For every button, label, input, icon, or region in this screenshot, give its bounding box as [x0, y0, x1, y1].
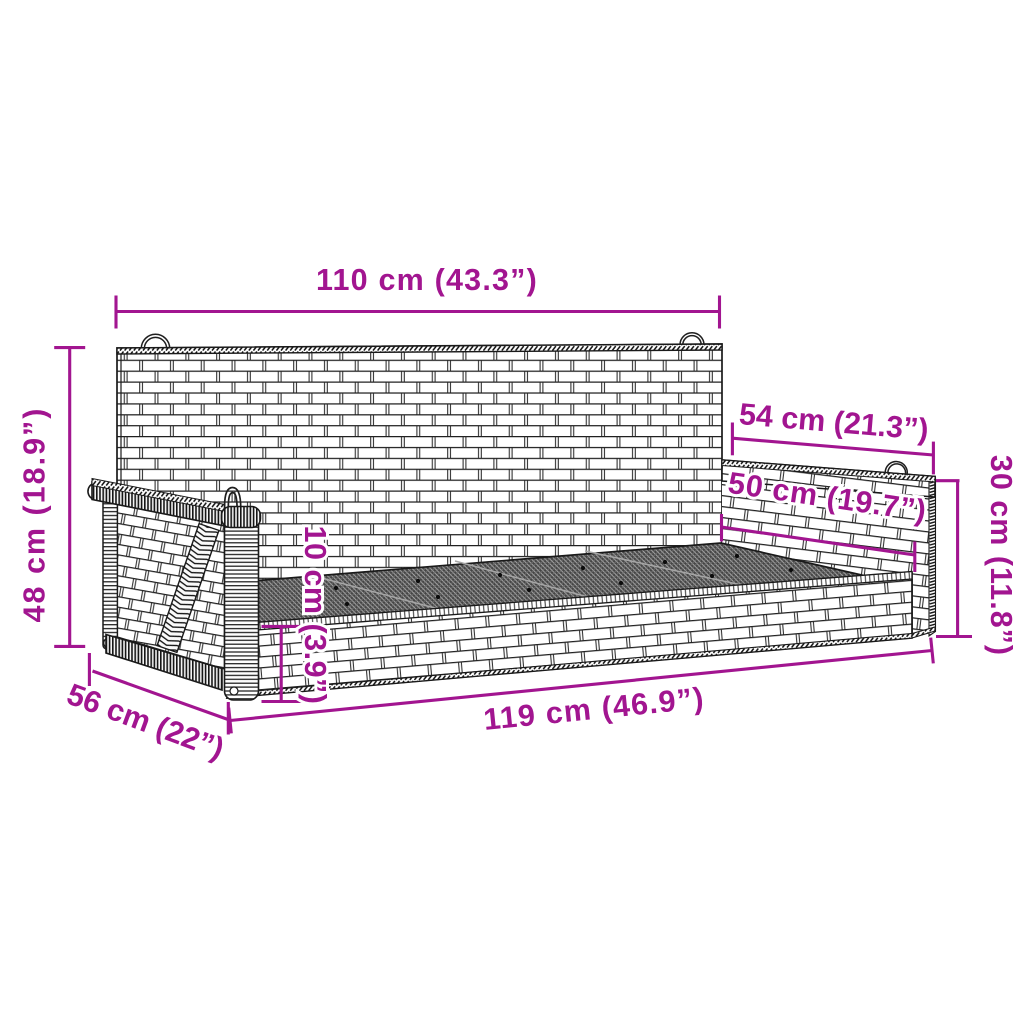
- svg-text:48 cm (18.9”): 48 cm (18.9”): [18, 407, 52, 623]
- svg-text:110 cm (43.3”): 110 cm (43.3”): [316, 263, 538, 297]
- svg-text:10 cm (3.9”): 10 cm (3.9”): [298, 526, 332, 705]
- svg-text:30 cm (11.8”): 30 cm (11.8”): [984, 455, 1018, 656]
